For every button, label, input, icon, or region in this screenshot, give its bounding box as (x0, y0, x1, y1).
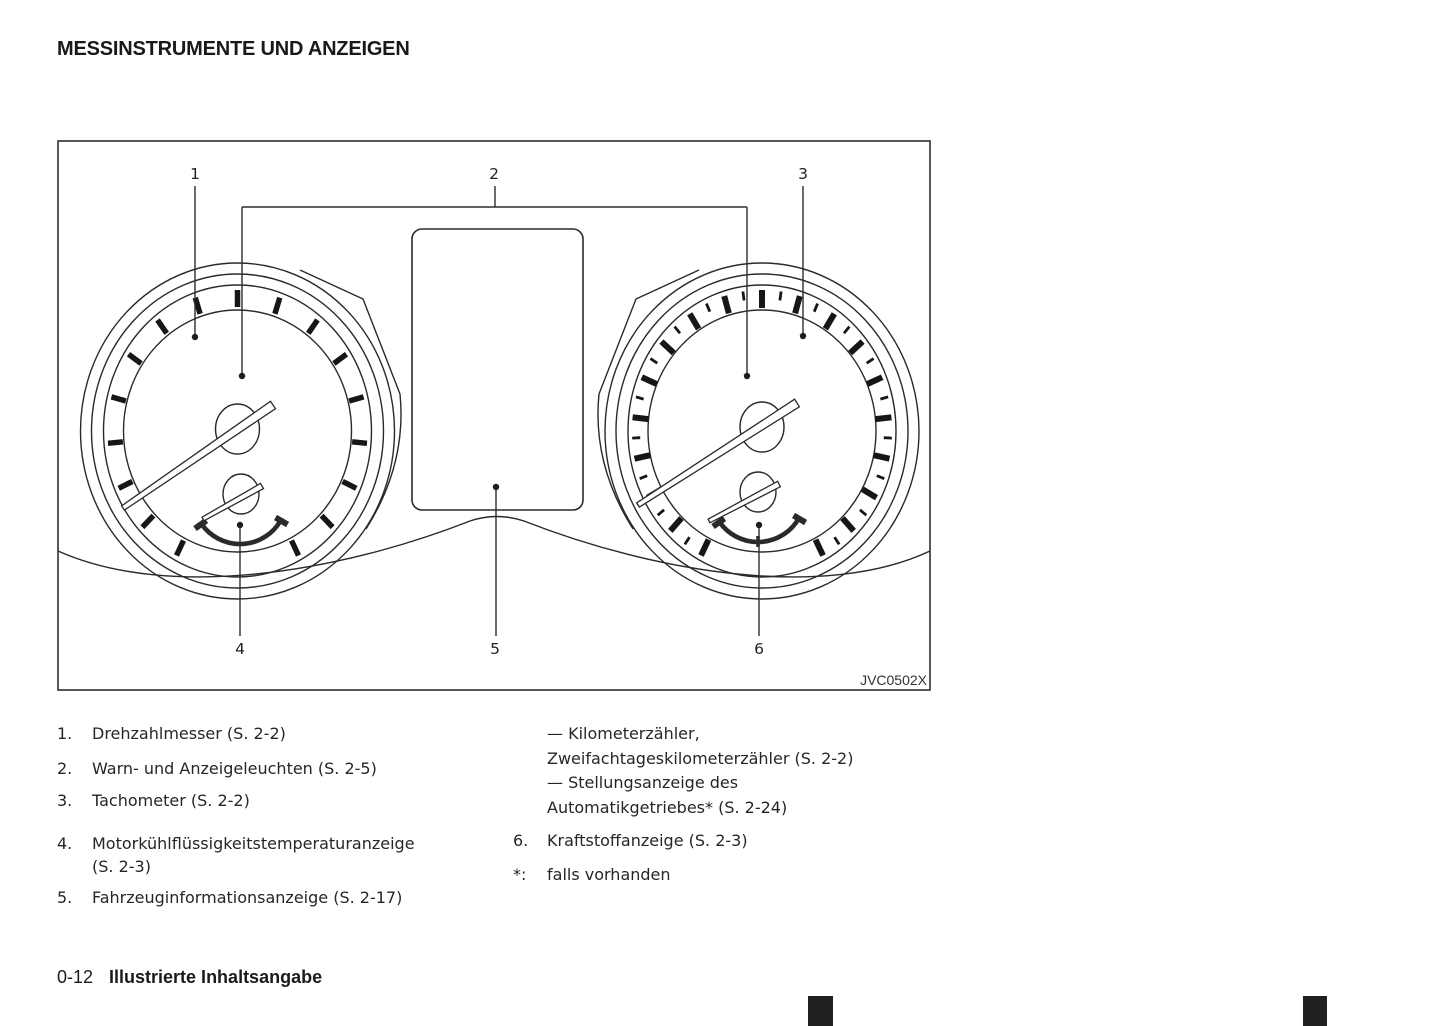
legend-item-number: 4. (57, 832, 92, 878)
legend-item-2: 2. Warn- und Anzeigeleuchten (S. 2-5) (57, 757, 487, 780)
legend-item-5: 5. Fahrzeuginformationsanzeige (S. 2-17) (57, 886, 487, 909)
legend-item-text: Automatikgetriebes* (S. 2-24) (547, 796, 933, 821)
page-title: MESSINSTRUMENTE UND ANZEIGEN (57, 38, 410, 61)
fuel-gauge (708, 472, 806, 547)
legend-item-text: Kraftstoffanzeige (S. 2-3) (547, 829, 933, 854)
temperature-gauge (195, 474, 288, 544)
legend-item-number: 6. (513, 829, 547, 854)
legend-item-6: 6. Kraftstoffanzeige (S. 2-3) (513, 829, 933, 854)
callout-label-4: 4 (235, 640, 245, 658)
print-mark (808, 996, 833, 1026)
footnote-text: falls vorhanden (547, 863, 933, 888)
legend-item-number: 5. (57, 886, 92, 909)
legend-item-number: 3. (57, 789, 92, 812)
legend-item-1: 1. Drehzahlmesser (S. 2-2) (57, 722, 487, 745)
instrument-cluster-diagram: 1 2 3 4 5 6 JVC0502X (57, 140, 931, 691)
legend-item-text: Tachometer (S. 2-2) (92, 789, 487, 812)
legend-item-text: Drehzahlmesser (S. 2-2) (92, 722, 487, 745)
legend-item-text: — Stellungsanzeige des (547, 771, 933, 796)
legend-item-text: Warn- und Anzeigeleuchten (S. 2-5) (92, 757, 487, 780)
legend-item-5-continued: — Kilometerzähler, Zweifachtageskilomete… (513, 722, 933, 820)
page-footer: 0-12 Illustrierte Inhaltsangabe (57, 967, 322, 988)
legend-item-number: 1. (57, 722, 92, 745)
legend-item-number (513, 722, 547, 820)
legend-item-number: 2. (57, 757, 92, 780)
callout-label-2: 2 (489, 165, 499, 183)
legend-right-column: — Kilometerzähler, Zweifachtageskilomete… (513, 722, 933, 896)
legend-item-text: Zweifachtageskilometerzähler (S. 2-2) (547, 747, 933, 772)
footnote-marker: *: (513, 863, 547, 888)
callout-label-3: 3 (798, 165, 808, 183)
legend-item-text: Fahrzeuginformationsanzeige (S. 2-17) (92, 886, 487, 909)
bezel-corner-right (598, 270, 699, 529)
callout-label-5: 5 (490, 640, 500, 658)
cluster-bottom-edge (58, 517, 930, 577)
figure-code: JVC0502X (860, 672, 928, 688)
legend-item-text: — Kilometerzähler, (547, 722, 933, 747)
legend-item-3: 3. Tachometer (S. 2-2) (57, 789, 487, 812)
legend-item-text: (S. 2-3) (92, 855, 487, 878)
page-number: 0-12 (57, 967, 93, 988)
callout-label-6: 6 (754, 640, 764, 658)
footer-section-title: Illustrierte Inhaltsangabe (109, 967, 322, 988)
print-mark (1303, 996, 1327, 1026)
callout-label-1: 1 (190, 165, 200, 183)
vehicle-information-display (412, 229, 583, 510)
legend-item-text: Motorkühlflüssigkeitstemperaturanzeige (92, 832, 487, 855)
legend-item-4: 4. Motorkühlflüssigkeitstemperaturanzeig… (57, 832, 487, 878)
legend-footnote: *: falls vorhanden (513, 863, 933, 888)
instrument-cluster-figure: 1 2 3 4 5 6 JVC0502X (57, 140, 931, 691)
cluster-drawing (58, 229, 930, 599)
legend-left-column: 1. Drehzahlmesser (S. 2-2) 2. Warn- und … (57, 722, 487, 919)
